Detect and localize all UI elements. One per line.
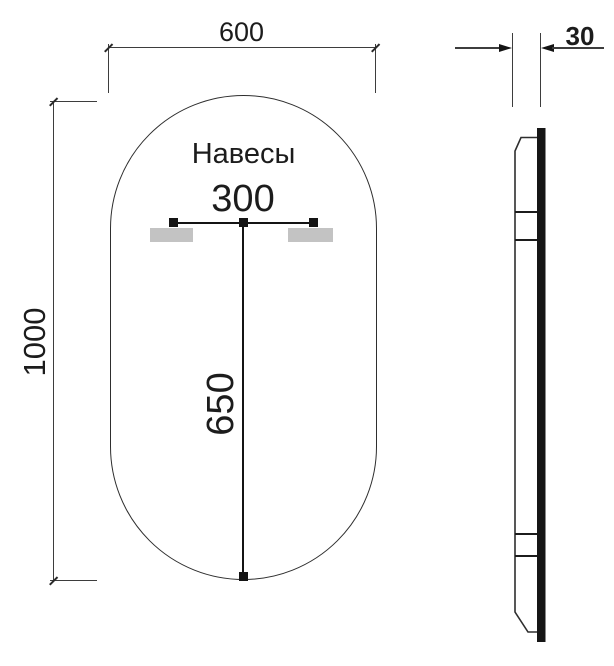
dim-600-line [108, 47, 375, 48]
dim-1000-label: 1000 [17, 276, 53, 408]
dim-600-ext-right [375, 44, 376, 93]
hanger-left [150, 228, 193, 242]
dim-300-label: 300 [163, 178, 323, 221]
dim-650-label: 650 [205, 339, 237, 469]
glass-bar [537, 128, 546, 642]
hanger-right [288, 228, 333, 242]
dim-650-line [242, 224, 244, 577]
dim-30-arrow-left [499, 44, 512, 52]
side-view-svg [495, 120, 565, 655]
dim-600-label: 600 [108, 17, 375, 48]
dim-30-line-left [455, 47, 502, 49]
dim-1000-ext-top [50, 101, 97, 102]
dim-300-marker-right [309, 218, 318, 227]
dim-650-end-marker [239, 572, 248, 581]
dim-1000-line [53, 101, 54, 580]
dim-1000-ext-bottom [50, 580, 97, 581]
dim-600-ext-left [108, 44, 109, 93]
drawing-canvas: Навесы 600 1000 300 [0, 0, 614, 666]
dim-30-ext-left [512, 33, 513, 107]
hangers-label: Навесы [110, 138, 377, 171]
dim-300-marker-left [169, 218, 178, 227]
dim-30-line-right [552, 47, 604, 49]
